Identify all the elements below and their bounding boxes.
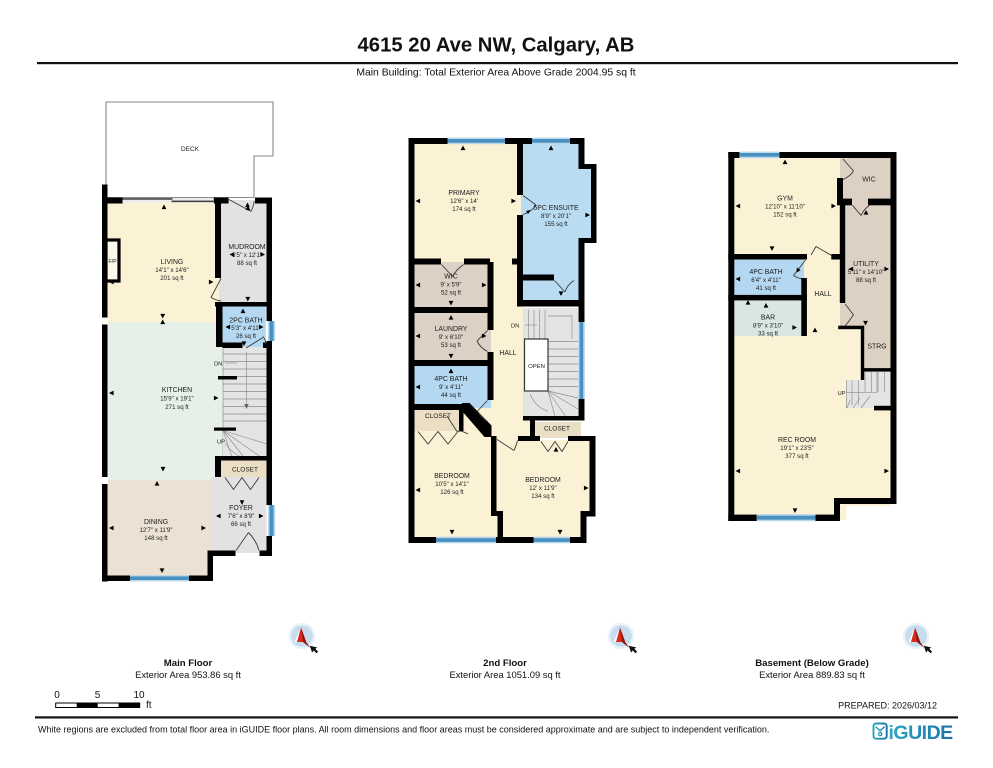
- svg-text:14'1" x 14'6": 14'1" x 14'6": [155, 267, 188, 274]
- svg-text:155 sq ft: 155 sq ft: [544, 221, 568, 228]
- svg-text:GYM: GYM: [777, 196, 793, 203]
- svg-text:271 sq ft: 271 sq ft: [165, 404, 189, 411]
- svg-text:53 sq ft: 53 sq ft: [441, 342, 461, 349]
- svg-text:UTILITY: UTILITY: [853, 261, 879, 268]
- svg-text:Basement (Below Grade): Basement (Below Grade): [755, 658, 869, 669]
- svg-text:LIVING: LIVING: [161, 259, 184, 266]
- svg-text:STRG: STRG: [867, 344, 886, 351]
- svg-text:8'9" x 20'1": 8'9" x 20'1": [541, 213, 571, 220]
- svg-text:134 sq ft: 134 sq ft: [531, 493, 555, 500]
- svg-text:iGUIDE: iGUIDE: [889, 722, 954, 744]
- svg-text:9' x 4'11": 9' x 4'11": [439, 384, 463, 391]
- svg-text:52 sq ft: 52 sq ft: [441, 290, 461, 297]
- svg-text:26 sq ft: 26 sq ft: [236, 333, 256, 340]
- svg-text:66 sq ft: 66 sq ft: [231, 521, 251, 528]
- svg-text:12'7" x 11'9": 12'7" x 11'9": [140, 527, 173, 534]
- svg-text:MUDROOM: MUDROOM: [228, 244, 265, 251]
- svg-text:DINING: DINING: [144, 519, 168, 526]
- svg-text:BEDROOM: BEDROOM: [434, 473, 470, 480]
- svg-text:15'9" x 19'1": 15'9" x 19'1": [160, 396, 193, 403]
- svg-text:12'10" x 11'10": 12'10" x 11'10": [765, 204, 805, 211]
- svg-text:BEDROOM: BEDROOM: [525, 477, 561, 484]
- svg-text:Exterior Area 889.83 sq ft: Exterior Area 889.83 sq ft: [759, 669, 865, 680]
- svg-text:148 sq ft: 148 sq ft: [144, 535, 168, 542]
- svg-text:44 sq ft: 44 sq ft: [441, 392, 461, 399]
- svg-text:WIC: WIC: [862, 177, 875, 184]
- svg-text:174 sq ft: 174 sq ft: [452, 206, 476, 213]
- svg-text:12'6" x 14': 12'6" x 14': [450, 198, 478, 205]
- svg-text:Main Floor: Main Floor: [164, 658, 213, 669]
- svg-text:REC ROOM: REC ROOM: [778, 437, 816, 444]
- svg-text:UP: UP: [838, 391, 846, 397]
- svg-text:2PC BATH: 2PC BATH: [229, 318, 262, 325]
- svg-text:0: 0: [54, 690, 60, 701]
- svg-text:6'5" x 12'1": 6'5" x 12'1": [232, 252, 262, 259]
- svg-text:ft: ft: [146, 700, 152, 711]
- svg-text:152 sq ft: 152 sq ft: [773, 212, 797, 219]
- svg-text:Exterior Area 1051.09 sq ft: Exterior Area 1051.09 sq ft: [449, 669, 560, 680]
- svg-text:HALL: HALL: [814, 291, 831, 298]
- svg-text:9' x 5'9": 9' x 5'9": [440, 282, 461, 289]
- svg-text:4PC BATH: 4PC BATH: [434, 376, 467, 383]
- svg-text:41 sq ft: 41 sq ft: [756, 285, 776, 292]
- svg-text:8'9" x 3'10": 8'9" x 3'10": [753, 323, 783, 330]
- svg-text:10'5" x 14'1": 10'5" x 14'1": [435, 481, 468, 488]
- svg-text:88 sq ft: 88 sq ft: [856, 277, 876, 284]
- svg-text:5'3" x 4'11": 5'3" x 4'11": [231, 325, 261, 332]
- svg-text:2nd Floor: 2nd Floor: [483, 658, 527, 669]
- svg-text:WIC: WIC: [444, 274, 457, 281]
- svg-text:CLOSET: CLOSET: [232, 467, 258, 474]
- svg-text:33 sq ft: 33 sq ft: [758, 331, 778, 338]
- svg-text:F/P: F/P: [108, 259, 117, 265]
- svg-text:5'11" x 14'10": 5'11" x 14'10": [848, 269, 884, 276]
- svg-text:LAUNDRY: LAUNDRY: [435, 326, 468, 333]
- svg-text:19'1" x 23'5": 19'1" x 23'5": [780, 445, 813, 452]
- svg-text:HALL: HALL: [499, 350, 516, 357]
- svg-text:DN: DN: [214, 362, 222, 368]
- svg-text:12' x 11'9": 12' x 11'9": [529, 485, 556, 492]
- svg-text:10: 10: [133, 690, 145, 701]
- svg-text:CLOSET: CLOSET: [425, 413, 451, 420]
- svg-text:6'4" x 4'11": 6'4" x 4'11": [751, 277, 781, 284]
- svg-text:OPEN: OPEN: [528, 364, 545, 370]
- svg-text:201 sq ft: 201 sq ft: [160, 275, 184, 282]
- svg-text:KITCHEN: KITCHEN: [162, 387, 192, 394]
- svg-text:Exterior Area 953.86 sq ft: Exterior Area 953.86 sq ft: [135, 669, 241, 680]
- svg-text:88 sq ft: 88 sq ft: [237, 260, 257, 267]
- svg-text:DN: DN: [511, 324, 519, 330]
- svg-text:9' x 6'10": 9' x 6'10": [439, 334, 463, 341]
- svg-text:Main Building: Total Exterior: Main Building: Total Exterior Area Above…: [356, 68, 635, 79]
- svg-text:FOYER: FOYER: [229, 505, 253, 512]
- svg-text:377 sq ft: 377 sq ft: [785, 453, 809, 460]
- svg-text:4PC BATH: 4PC BATH: [749, 269, 782, 276]
- svg-text:4615 20 Ave NW, Calgary, AB: 4615 20 Ave NW, Calgary, AB: [358, 35, 635, 57]
- svg-text:PRIMARY: PRIMARY: [448, 190, 480, 197]
- svg-text:BAR: BAR: [761, 315, 775, 322]
- svg-text:126 sq ft: 126 sq ft: [440, 489, 464, 496]
- svg-text:UP: UP: [217, 440, 225, 446]
- svg-text:CLOSET: CLOSET: [544, 426, 570, 433]
- svg-text:5: 5: [95, 690, 101, 701]
- svg-text:5PC ENSUITE: 5PC ENSUITE: [533, 205, 579, 212]
- svg-text:DECK: DECK: [181, 146, 200, 153]
- svg-text:PREPARED: 2026/03/12: PREPARED: 2026/03/12: [838, 701, 937, 711]
- svg-text:7'6" x 8'9": 7'6" x 8'9": [228, 513, 255, 520]
- svg-text:White regions are excluded fro: White regions are excluded from total fl…: [38, 725, 769, 735]
